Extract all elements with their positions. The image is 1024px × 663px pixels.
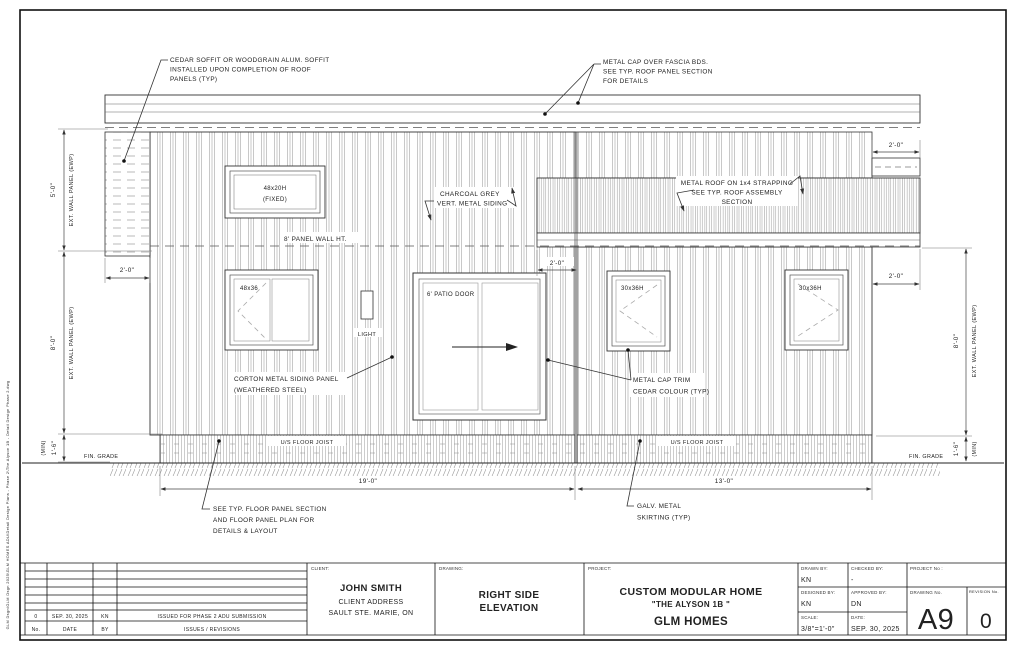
revision-no-value: 0 (980, 610, 992, 633)
window-size-label: 30x36H (799, 286, 822, 292)
elevation-view: 8' PANEL WALL HT. 48x20H (FIXED) 48x36 L… (22, 95, 1004, 476)
dim-13ft: 13'-0" (715, 478, 733, 485)
leader-dot (543, 112, 547, 116)
dim-2ft-right-overhang: 2'-0" (889, 273, 903, 280)
dim-1ft6-right: 1'-6" (953, 442, 960, 456)
note-skirting-2: SKIRTING (TYP) (637, 515, 690, 522)
date-label: DATE: (851, 615, 865, 620)
approved-by-label: APPROVED BY: (851, 590, 887, 595)
checked-by-value: - (851, 577, 854, 584)
dim-8ft-right: 8'-0" (953, 334, 960, 348)
dim-8ft-left: 8'-0" (50, 336, 57, 350)
rev-row-desc: ISSUED FOR PHASE 2 ADU SUBMISSION (157, 614, 266, 620)
grade-hatch (110, 463, 940, 476)
leader-dot (546, 358, 550, 362)
note-cedar-soffit-2: INSTALLED UPON COMPLETION OF ROOF (170, 67, 311, 74)
elevation-drawing-canvas: GLM Dsgn\GLM Dsgn 2025\GLM HOMES ADU\Det… (0, 0, 1024, 663)
drawn-by-value: KN (801, 577, 811, 584)
panel-wall-ht-label: 8' PANEL WALL HT. (284, 236, 347, 243)
rev-header-by: BY (101, 627, 109, 633)
dim-2ft-left-eave: 2'-0" (120, 267, 134, 274)
fin-grade-label-left: FIN. GRADE (84, 454, 118, 460)
rev-header-desc: ISSUES / REVISIONS (184, 627, 240, 633)
project-name-1: CUSTOM MODULAR HOME (620, 586, 763, 598)
designed-by-value: KN (801, 601, 811, 608)
dim-min-left: (MIN) (41, 440, 47, 455)
leader-dot (638, 439, 642, 443)
project-no-label: PROJECT No : (910, 566, 943, 571)
rev-header-no: No. (32, 627, 41, 633)
note-metal-cap-1: METAL CAP OVER FASCIA BDS. (603, 59, 708, 66)
leader-dot (122, 159, 126, 163)
note-corton-1: CORTON METAL SIDING PANEL (234, 376, 339, 383)
drawing-name-1: RIGHT SIDE (479, 590, 540, 601)
approved-by-value: DN (851, 601, 862, 608)
upper-right-wall (575, 132, 872, 178)
client-label: CLIENT: (311, 566, 329, 571)
window-30x36h-2: 30x36H (785, 270, 848, 350)
note-charcoal-2: VERT. METAL SIDING (437, 201, 507, 208)
note-metal-cap-2: SEE TYP. ROOF PANEL SECTION (603, 69, 713, 76)
leader-dot (626, 348, 630, 352)
dim-ewp-right: EXT. WALL PANEL (EWP) (972, 305, 978, 378)
light-label: LIGHT (358, 332, 376, 338)
leader-dot (390, 355, 394, 359)
note-cap-trim-1: METAL CAP TRIM (633, 377, 691, 384)
rev-row-no: 0 (34, 614, 37, 620)
revision-no-label: REVISION No. (969, 589, 999, 594)
note-metal-roof-2: SEE TYP. ROOF ASSEMBLY (691, 190, 783, 197)
project-label: PROJECT: (588, 566, 611, 571)
note-skirting-1: GALV. METAL (637, 503, 681, 510)
us-floor-joist-label-right: U/S FLOOR JOIST (671, 440, 724, 446)
window-size-label: 48x36 (240, 286, 258, 292)
drawing-no-value: A9 (918, 604, 954, 636)
project-name-2: "THE ALYSON 1B " (652, 600, 730, 609)
note-metal-cap-3: FOR DETAILS (603, 78, 648, 85)
rev-row-by: KN (101, 614, 109, 620)
dim-min-right: (MIN) (972, 441, 978, 456)
scale-label: SCALE: (801, 615, 818, 620)
skirting-left (160, 435, 575, 463)
note-metal-roof-1: METAL ROOF ON 1x4 STRAPPING (681, 180, 793, 187)
checked-by-label: CHECKED BY: (851, 566, 883, 571)
note-cedar-soffit-1: CEDAR SOFFIT OR WOODGRAIN ALUM. SOFFIT (170, 57, 329, 64)
note-charcoal-1: CHARCOAL GREY (440, 191, 500, 198)
us-floor-joist-label-left: U/S FLOOR JOIST (281, 440, 334, 446)
client-address-1: CLIENT ADDRESS (338, 599, 403, 606)
dim-19ft: 19'-0" (359, 478, 377, 485)
patio-door: 6' PATIO DOOR (413, 273, 546, 420)
drawing-label: DRAWING: (439, 566, 463, 571)
dim-ewp-lower-left: EXT. WALL PANEL (EWP) (69, 307, 75, 380)
designed-by-label: DESIGNED BY: (801, 590, 835, 595)
light-fixture (361, 291, 373, 319)
fin-grade-label-right: FIN. GRADE (909, 454, 943, 460)
dim-5ft: 5'-0" (50, 183, 57, 197)
drawing-name-2: ELEVATION (480, 603, 539, 614)
note-floor-panel-1: SEE TYP. FLOOR PANEL SECTION (213, 506, 327, 513)
client-address-2: SAULT STE. MARIE, ON (329, 610, 414, 617)
note-floor-panel-3: DETAILS & LAYOUT (213, 528, 278, 535)
window-type-label: (FIXED) (263, 197, 287, 203)
window-size-label: 30x36H (621, 286, 644, 292)
window-48x20h-fixed: 48x20H (FIXED) (225, 166, 325, 218)
dim-1ft6-left: 1'-6" (51, 441, 58, 455)
drawing-sheet: GLM Dsgn\GLM Dsgn 2025\GLM HOMES ADU\Det… (0, 0, 1024, 663)
project-name-3: GLM HOMES (654, 616, 728, 628)
drawn-by-label: DRAWN BY: (801, 566, 828, 571)
note-floor-panel-2: AND FLOOR PANEL PLAN FOR (213, 517, 314, 524)
roof-fascia-band (105, 95, 920, 123)
window-30x36h-1: 30x36H (607, 271, 670, 351)
window-size-label: 48x20H (264, 186, 287, 192)
dim-2ft-top-right: 2'-0" (889, 142, 903, 149)
dim-ewp-upper-left: EXT. WALL PANEL (EWP) (69, 154, 75, 227)
drawing-no-label: DRAWING No. (910, 590, 942, 595)
rev-row-date: SEP. 30, 2025 (52, 614, 88, 620)
note-corton-2: (WEATHERED STEEL) (234, 387, 307, 394)
rev-header-date: DATE (63, 627, 78, 633)
dim-2ft-mid-overhang: 2'-0" (550, 260, 564, 267)
note-cedar-soffit-3: PANELS (TYP) (170, 76, 217, 83)
client-name: JOHN SMITH (340, 583, 402, 594)
patio-door-label: 6' PATIO DOOR (427, 292, 475, 298)
note-cap-trim-2: CEDAR COLOUR (TYP) (633, 389, 709, 396)
leader-dot (217, 439, 221, 443)
file-path-sidenote: GLM Dsgn\GLM Dsgn 2025\GLM HOMES ADU\Det… (5, 381, 10, 630)
scale-value: 3/8"=1'-0" (801, 626, 835, 633)
note-metal-roof-3: SECTION (722, 199, 753, 206)
window-48x36: 48x36 (225, 270, 318, 350)
leader-dot (576, 101, 580, 105)
date-value: SEP. 30, 2025 (851, 626, 900, 633)
